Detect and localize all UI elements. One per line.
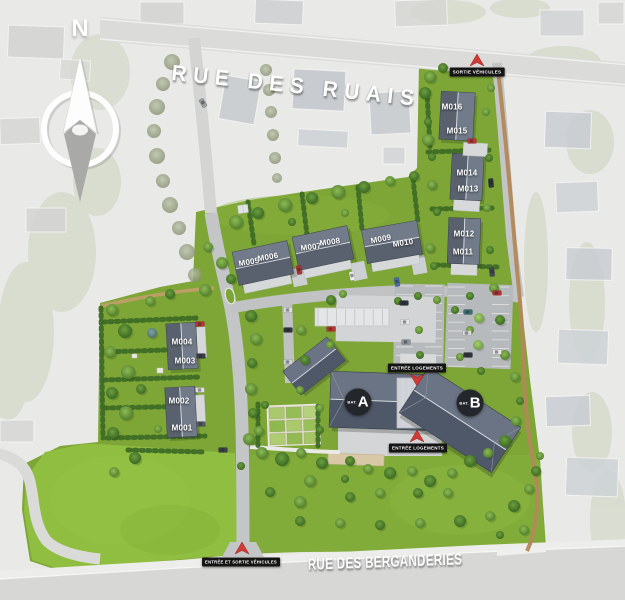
building-b-letter: B <box>470 396 481 411</box>
plot-label-m013[interactable]: M013 <box>458 185 479 194</box>
building-b-badge[interactable]: BAT. B <box>457 390 484 417</box>
plot-label-m011[interactable]: M011 <box>453 248 473 257</box>
homes-entrance-north-marker: ENTRÉE LOGEMENTS <box>388 364 446 373</box>
plot-label-m012[interactable]: M012 <box>454 230 475 239</box>
plot-label-m001[interactable]: M001 <box>172 424 193 433</box>
building-a-badge[interactable]: BAT. A <box>345 389 372 416</box>
plot-label-m016[interactable]: M016 <box>442 103 463 112</box>
main-entrance-marker: ENTRÉE ET SORTIE VÉHICULES <box>202 558 280 567</box>
site-plan: N RUE DES RUAIS RUE DES BERGANDERIES SOR… <box>0 0 625 600</box>
building-a-prefix: BAT. <box>347 400 356 405</box>
plot-label-m015[interactable]: M015 <box>447 127 468 136</box>
building-a-letter: A <box>358 395 369 410</box>
plot-label-m004[interactable]: M004 <box>172 338 193 347</box>
plot-label-m014[interactable]: M014 <box>457 169 478 178</box>
plot-label-m002[interactable]: M002 <box>169 397 190 406</box>
plot-label-m003[interactable]: M003 <box>175 357 196 366</box>
allotment-garden <box>267 404 320 446</box>
building-b-prefix: BAT. <box>459 401 468 406</box>
north-label: N <box>71 15 88 43</box>
homes-entrance-south-marker: ENTRÉE LOGEMENTS <box>389 444 447 453</box>
vehicle-exit-marker: SORTIE VÉHICULES <box>450 68 505 77</box>
